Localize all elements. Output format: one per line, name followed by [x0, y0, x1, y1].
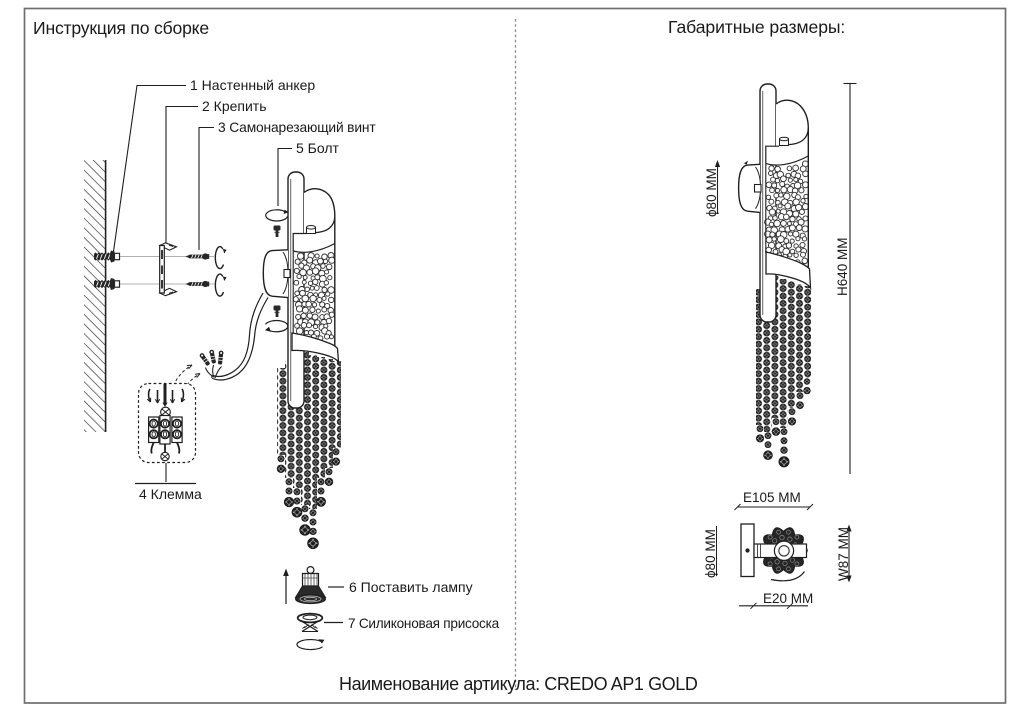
svg-text:W87 ММ: W87 ММ [836, 527, 851, 581]
svg-text:1 Настенный анкер: 1 Настенный анкер [190, 77, 315, 93]
svg-text:ϕ80 ММ: ϕ80 ММ [704, 168, 719, 217]
svg-text:6 Поставить лампу: 6 Поставить лампу [349, 579, 473, 595]
svg-text:2 Крепить: 2 Крепить [202, 98, 267, 114]
svg-text:7 Силиконовая присоска: 7 Силиконовая присоска [348, 616, 500, 631]
svg-text:E105 ММ: E105 ММ [743, 490, 801, 505]
svg-text:4 Клемма: 4 Клемма [139, 486, 202, 502]
svg-text:ϕ80 ММ: ϕ80 ММ [703, 529, 718, 578]
svg-text:Инструкция по сборке: Инструкция по сборке [33, 18, 209, 38]
svg-text:5 Болт: 5 Болт [296, 140, 340, 156]
svg-text:3 Самонарезающий винт: 3 Самонарезающий винт [218, 120, 376, 135]
svg-text:Наименование артикула: CREDO A: Наименование артикула: CREDO AP1 GOLD [339, 674, 698, 694]
svg-text:H640 ММ: H640 ММ [835, 237, 850, 296]
svg-text:Габаритные размеры:: Габаритные размеры: [668, 17, 845, 37]
svg-text:E20 ММ: E20 ММ [763, 591, 813, 606]
